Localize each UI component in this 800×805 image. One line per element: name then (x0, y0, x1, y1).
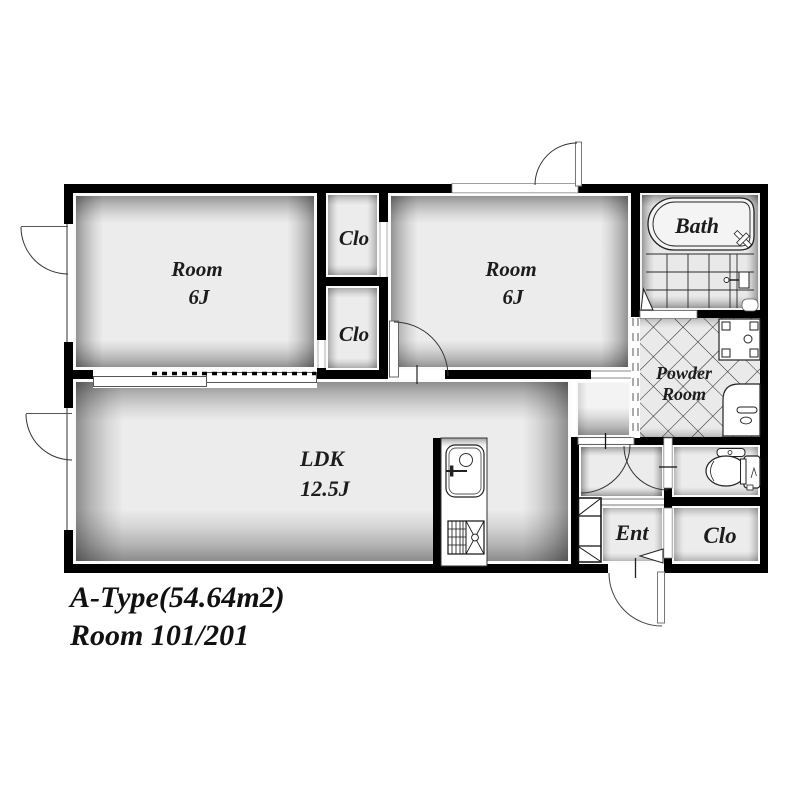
svg-text:12.5J: 12.5J (300, 476, 351, 501)
svg-text:Clo: Clo (703, 523, 736, 548)
svg-text:Room 101/201: Room 101/201 (69, 619, 249, 652)
svg-text:Bath: Bath (674, 213, 719, 238)
svg-text:LDK: LDK (299, 446, 345, 471)
svg-text:Room: Room (484, 257, 536, 281)
svg-text:Powder: Powder (655, 363, 713, 383)
svg-text:A-Type(54.64m2): A-Type(54.64m2) (68, 581, 285, 614)
svg-text:Clo: Clo (339, 226, 369, 250)
svg-text:6J: 6J (503, 285, 526, 309)
svg-text:Room: Room (170, 257, 222, 281)
svg-text:Ent: Ent (614, 520, 649, 545)
svg-text:6J: 6J (189, 285, 212, 309)
svg-text:Room: Room (661, 384, 706, 404)
svg-text:Clo: Clo (339, 322, 369, 346)
